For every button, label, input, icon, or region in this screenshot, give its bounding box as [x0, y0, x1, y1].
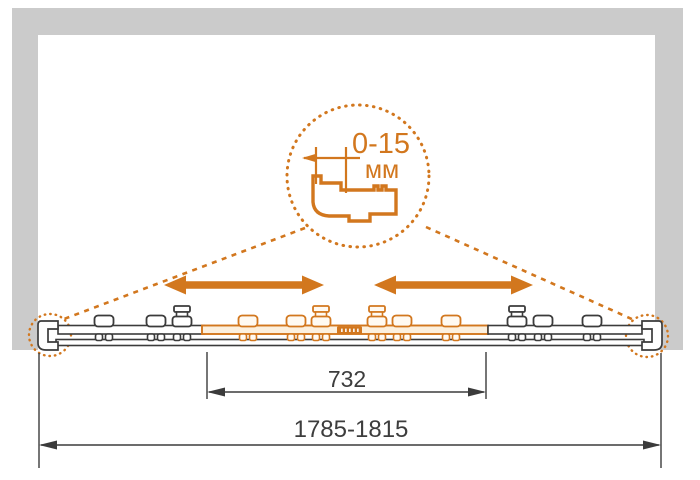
slide-arrow-left-icon [164, 276, 324, 295]
callout-unit-label: мм [365, 156, 399, 185]
slide-arrow-right-icon [374, 276, 533, 295]
roller-dark-tall-right [508, 306, 527, 341]
right-wall-profile-cap [642, 321, 662, 350]
roller-orange-tall-2 [368, 306, 387, 341]
overall-width-range-value: 1785-1815 [294, 416, 409, 444]
rail-bottom-guide [56, 340, 644, 346]
diagram-drawing [0, 0, 700, 480]
brand-mark [337, 327, 362, 335]
callout-circle [287, 105, 429, 247]
shower-door-installation-diagram: 0-15 мм 732 1785-1815 [0, 0, 700, 480]
callout-connector-right [426, 227, 634, 320]
roller-dark-tall-left [173, 306, 192, 341]
left-wall-profile-cap [38, 321, 58, 350]
roller-orange-tall-1 [312, 306, 331, 341]
door-panel-width-value: 732 [328, 366, 366, 393]
